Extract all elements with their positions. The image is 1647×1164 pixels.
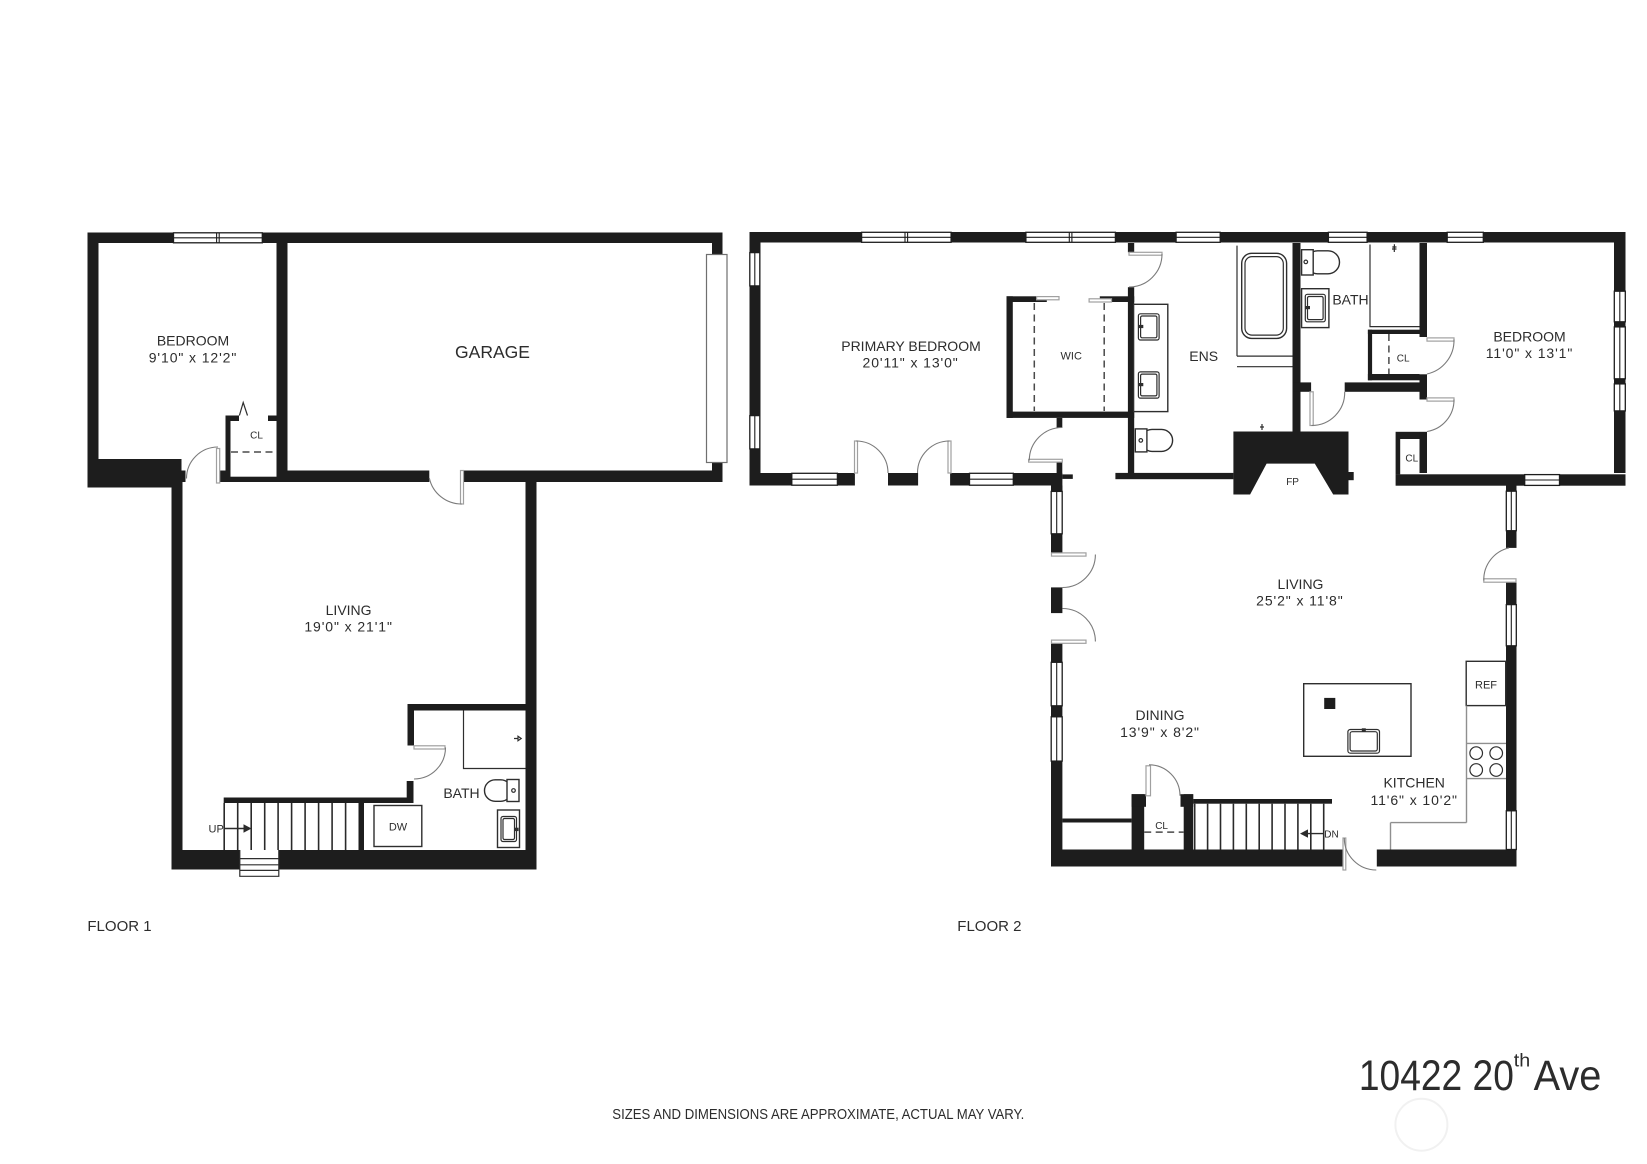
- svg-text:13'9" x 8'2": 13'9" x 8'2": [1120, 724, 1200, 740]
- svg-text:BATH: BATH: [443, 785, 479, 801]
- svg-text:DINING: DINING: [1136, 707, 1185, 723]
- svg-text:FLOOR 1: FLOOR 1: [87, 918, 151, 935]
- svg-text:20'11" x 13'0": 20'11" x 13'0": [863, 354, 959, 370]
- svg-text:LIVING: LIVING: [1278, 576, 1324, 592]
- svg-text:10422 20: 10422 20: [1359, 1052, 1514, 1100]
- svg-text:Ave: Ave: [1534, 1052, 1602, 1100]
- svg-text:9'10" x 12'2": 9'10" x 12'2": [149, 349, 237, 365]
- svg-text:CL: CL: [1405, 453, 1418, 464]
- svg-text:SIZES AND DIMENSIONS ARE APPRO: SIZES AND DIMENSIONS ARE APPROXIMATE, AC…: [612, 1107, 1024, 1123]
- svg-text:11'6" x 10'2": 11'6" x 10'2": [1370, 792, 1457, 808]
- svg-text:CL: CL: [250, 431, 263, 442]
- svg-text:WIC: WIC: [1061, 351, 1082, 363]
- svg-text:LIVING: LIVING: [326, 602, 372, 618]
- svg-text:BATH: BATH: [1332, 292, 1368, 308]
- svg-text:BEDROOM: BEDROOM: [1493, 329, 1565, 345]
- svg-text:FLOOR 2: FLOOR 2: [957, 918, 1021, 935]
- svg-text:REF: REF: [1475, 679, 1497, 691]
- svg-text:UP: UP: [209, 824, 224, 836]
- svg-text:19'0" x 21'1": 19'0" x 21'1": [304, 619, 392, 635]
- svg-text:PRIMARY BEDROOM: PRIMARY BEDROOM: [841, 338, 981, 354]
- svg-text:GARAGE: GARAGE: [455, 342, 530, 362]
- svg-text:CL: CL: [1397, 353, 1410, 364]
- svg-text:BEDROOM: BEDROOM: [157, 332, 229, 348]
- svg-text:th: th: [1514, 1051, 1530, 1071]
- svg-text:CL: CL: [1155, 821, 1168, 832]
- svg-text:DW: DW: [389, 822, 408, 834]
- svg-text:DN: DN: [1324, 830, 1338, 841]
- svg-text:ENS: ENS: [1189, 348, 1218, 364]
- svg-text:FP: FP: [1286, 477, 1299, 488]
- svg-text:25'2" x 11'8": 25'2" x 11'8": [1256, 593, 1343, 609]
- svg-text:KITCHEN: KITCHEN: [1383, 775, 1444, 791]
- svg-text:11'0" x 13'1": 11'0" x 13'1": [1486, 345, 1573, 361]
